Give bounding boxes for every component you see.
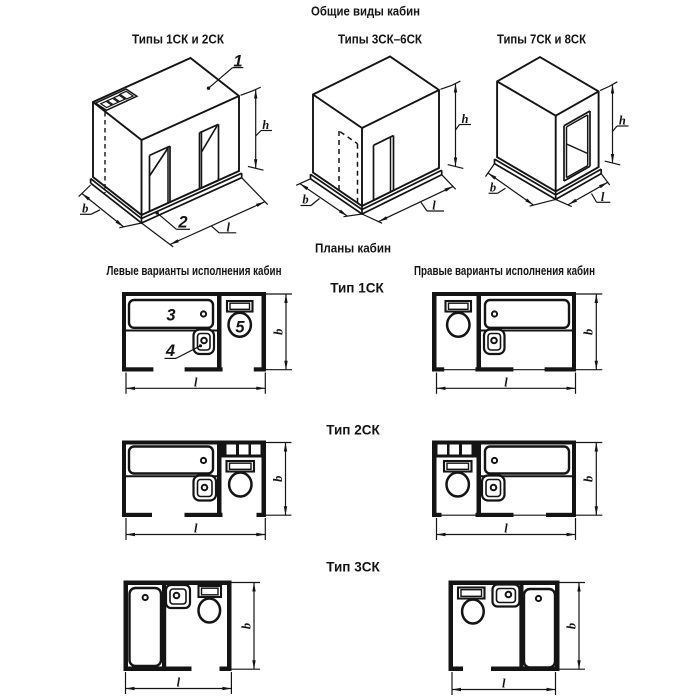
svg-text:b: b (302, 193, 308, 207)
svg-text:Правые варианты исполнения каб: Правые варианты исполнения кабин (414, 264, 595, 278)
svg-text:Типы 3СК–6СК: Типы 3СК–6СК (338, 32, 422, 47)
svg-text:l: l (504, 522, 508, 536)
svg-text:l: l (194, 375, 198, 389)
svg-text:Планы кабин: Планы кабин (315, 241, 391, 256)
svg-text:l: l (177, 676, 181, 690)
svg-text:h: h (619, 114, 626, 128)
svg-text:Типы 7СК и 8СК: Типы 7СК и 8СК (497, 32, 586, 47)
svg-text:b: b (582, 476, 596, 482)
svg-text:b: b (271, 329, 285, 335)
svg-text:5: 5 (235, 319, 245, 337)
svg-text:l: l (227, 220, 231, 234)
svg-text:Тип 3СК: Тип 3СК (326, 560, 380, 575)
svg-text:Общие виды кабин: Общие виды кабин (311, 4, 420, 19)
svg-text:l: l (432, 198, 436, 212)
svg-text:4: 4 (165, 342, 175, 360)
svg-text:h: h (262, 118, 269, 132)
svg-text:Типы 1СК и 2СК: Типы 1СК и 2СК (132, 32, 224, 47)
svg-text:b: b (564, 623, 578, 629)
svg-text:l: l (504, 375, 508, 389)
svg-text:l: l (601, 190, 605, 204)
svg-text:Левые варианты исполнения каби: Левые варианты исполнения кабин (107, 264, 282, 278)
svg-text:Тип 1СК: Тип 1СК (330, 281, 384, 296)
svg-text:b: b (239, 623, 253, 629)
svg-text:l: l (502, 677, 506, 691)
svg-text:b: b (582, 329, 596, 335)
svg-text:h: h (462, 112, 469, 126)
svg-text:3: 3 (166, 307, 175, 325)
svg-text:b: b (82, 202, 88, 216)
svg-text:Тип 2СК: Тип 2СК (326, 423, 380, 438)
svg-text:b: b (490, 181, 496, 195)
svg-text:b: b (271, 476, 285, 482)
svg-text:l: l (194, 522, 198, 536)
